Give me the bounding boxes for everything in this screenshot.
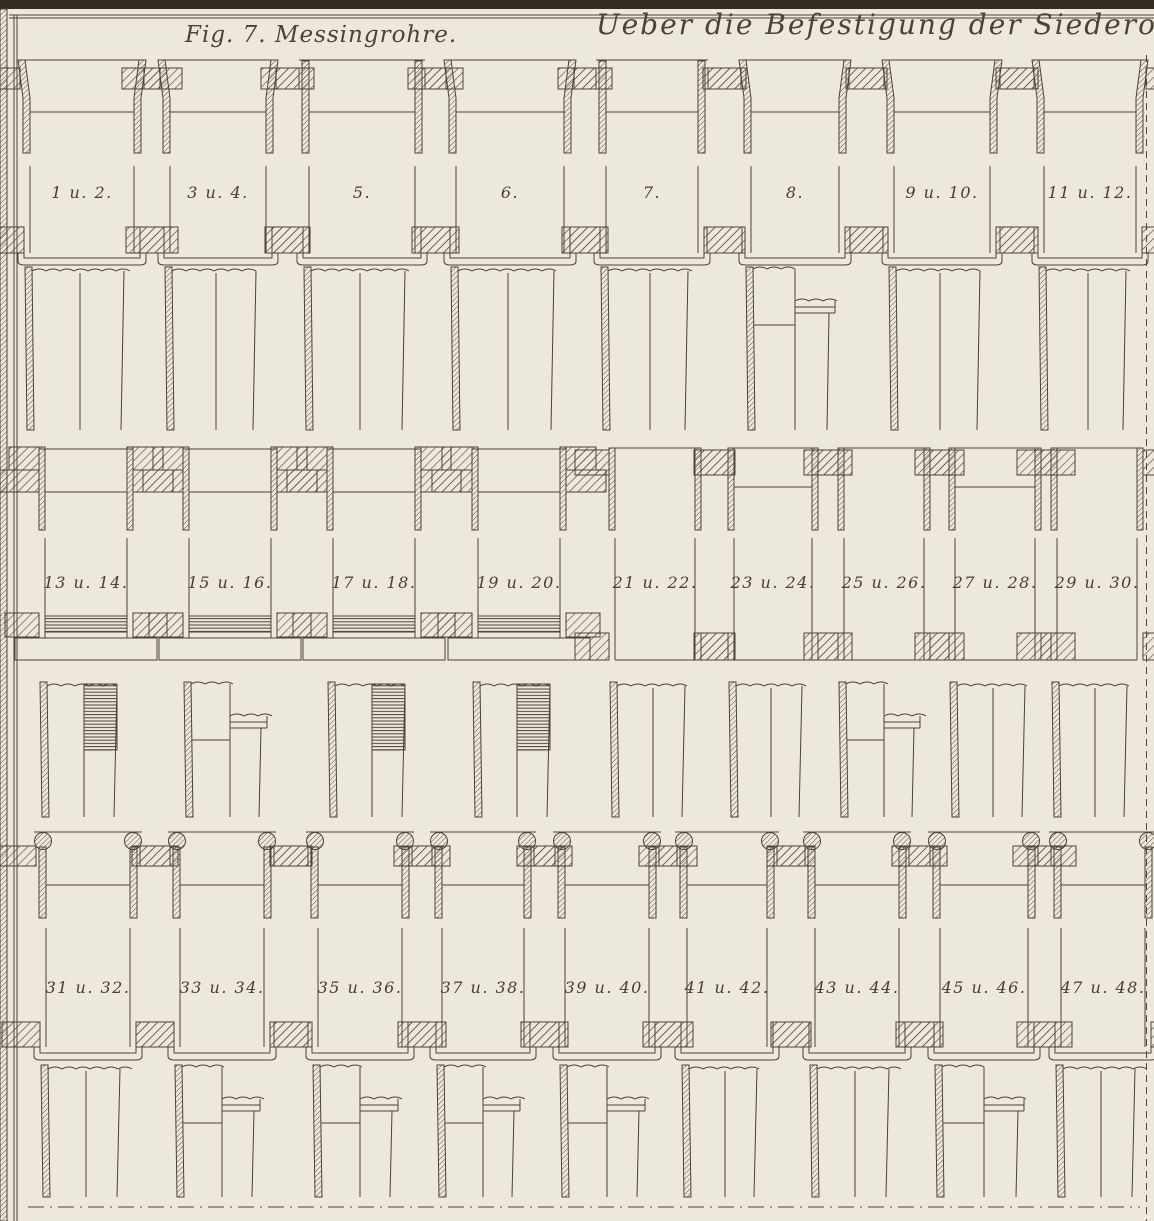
tube-label: 13 u. 14. xyxy=(44,573,129,592)
tube-label: 7. xyxy=(643,183,661,202)
tube-label: 45 u. 46. xyxy=(941,978,1027,997)
tube-label: 1 u. 2. xyxy=(51,183,113,202)
tube-band-2: 13 u. 14.15 u. 16.17 u. 18.19 u. 20.21 u… xyxy=(0,447,1154,817)
tube-column: 15 u. 16. xyxy=(143,447,317,817)
tube-label: 35 u. 36. xyxy=(318,978,403,997)
tube-label: 19 u. 20. xyxy=(477,573,562,592)
tube-label: 43 u. 44. xyxy=(814,978,900,997)
plate-title: Ueber die Befestigung der Siederohre in … xyxy=(596,8,1154,41)
tube-column: 11 u. 12. xyxy=(996,60,1154,430)
tube-label: 3 u. 4. xyxy=(187,183,249,202)
tube-column: 13 u. 14. xyxy=(0,447,173,817)
tube-column: 39 u. 40. xyxy=(517,832,697,1197)
figure-canvas: 1 u. 2.3 u. 4.5.6.7.8.9 u. 10.11 u. 12.1… xyxy=(0,0,1154,1221)
tube-label: 47 u. 48. xyxy=(1060,978,1146,997)
tube-label: 27 u. 28. xyxy=(952,573,1038,592)
tube-label: 39 u. 40. xyxy=(565,978,650,997)
tube-column: 17 u. 18. xyxy=(287,447,461,817)
engraving-plate: 1 u. 2.3 u. 4.5.6.7.8.9 u. 10.11 u. 12.1… xyxy=(0,0,1154,1221)
tube-column: 19 u. 20. xyxy=(432,447,606,817)
tube-label: 9 u. 10. xyxy=(905,183,978,202)
tube-label: 23 u. 24. xyxy=(730,573,816,592)
tube-label: 37 u. 38. xyxy=(441,978,526,997)
tube-label: 15 u. 16. xyxy=(188,573,273,592)
tube-column: 41 u. 42. xyxy=(639,832,815,1197)
tube-column: 35 u. 36. xyxy=(270,832,450,1197)
tube-label: 17 u. 18. xyxy=(332,573,417,592)
fig-caption: Fig. 7. Messingrohre. xyxy=(185,22,457,48)
tube-label: 6. xyxy=(501,183,519,202)
tube-band-3: 31 u. 32.33 u. 34.35 u. 36.37 u. 38.39 u… xyxy=(0,832,1154,1197)
tube-label: 41 u. 42. xyxy=(684,978,770,997)
tube-label: 29 u. 30. xyxy=(1054,573,1140,592)
tube-label: 5. xyxy=(353,183,371,202)
tube-column: 45 u. 46. xyxy=(892,832,1076,1197)
tube-label: 11 u. 12. xyxy=(1048,183,1133,202)
tube-band-1: 1 u. 2.3 u. 4.5.6.7.8.9 u. 10.11 u. 12. xyxy=(0,60,1154,430)
tube-label: 31 u. 32. xyxy=(46,978,131,997)
tube-column: 33 u. 34. xyxy=(132,832,312,1197)
tube-column: 43 u. 44. xyxy=(767,832,947,1197)
tube-label: 21 u. 22. xyxy=(612,573,698,592)
tube-label: 33 u. 34. xyxy=(180,978,265,997)
tube-label: 8. xyxy=(786,183,804,202)
tube-column: 37 u. 38. xyxy=(394,832,572,1197)
tube-column: 31 u. 32. xyxy=(0,832,178,1197)
tube-label: 25 u. 26. xyxy=(841,573,927,592)
